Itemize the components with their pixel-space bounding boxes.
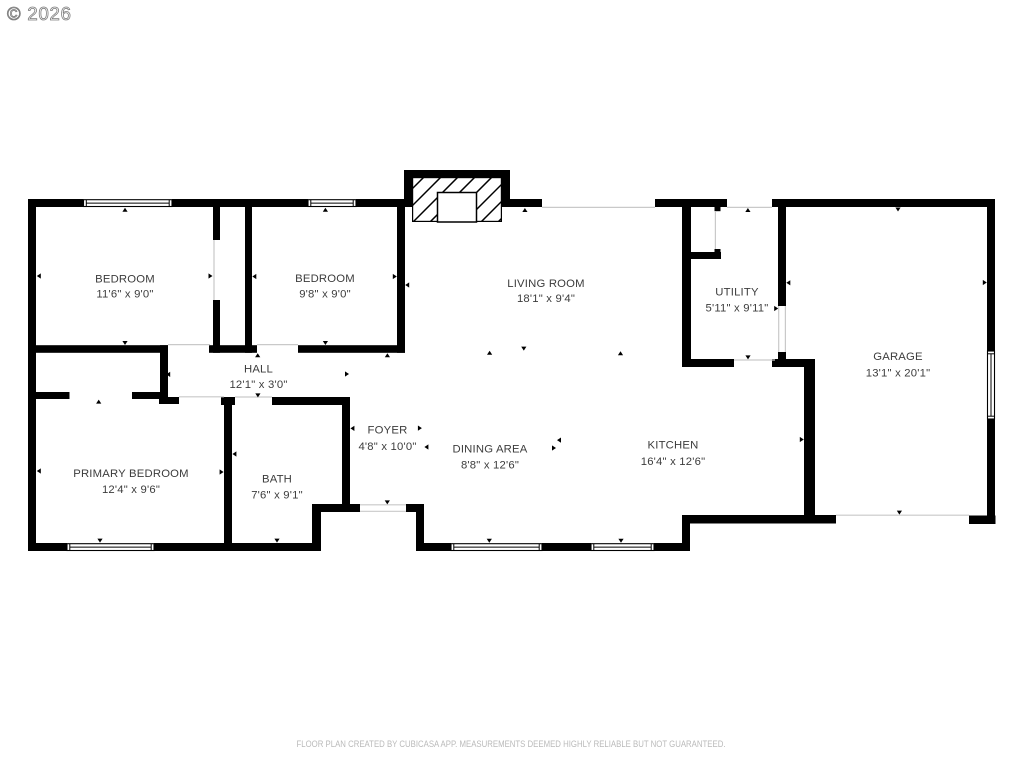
svg-text:5'11" x 9'11": 5'11" x 9'11" [706, 303, 769, 315]
svg-text:HALL: HALL [244, 364, 273, 376]
svg-text:12'4" x 9'6": 12'4" x 9'6" [102, 484, 160, 496]
svg-text:PRIMARY BEDROOM: PRIMARY BEDROOM [73, 468, 189, 480]
svg-text:13'1" x 20'1": 13'1" x 20'1" [866, 368, 931, 380]
svg-text:BEDROOM: BEDROOM [295, 273, 355, 285]
svg-text:18'1" x 9'4": 18'1" x 9'4" [517, 293, 575, 305]
svg-text:FLOOR PLAN CREATED BY CUBICASA: FLOOR PLAN CREATED BY CUBICASA APP. MEAS… [297, 739, 726, 750]
svg-text:GARAGE: GARAGE [873, 351, 923, 363]
svg-text:KITCHEN: KITCHEN [648, 440, 699, 452]
svg-text:16'4" x 12'6": 16'4" x 12'6" [641, 456, 706, 468]
svg-text:© 2026: © 2026 [7, 3, 72, 24]
svg-text:7'6" x 9'1": 7'6" x 9'1" [251, 490, 303, 502]
svg-text:DINING AREA: DINING AREA [452, 444, 527, 456]
svg-text:UTILITY: UTILITY [715, 287, 759, 299]
svg-text:9'8" x 9'0": 9'8" x 9'0" [299, 289, 351, 301]
svg-text:FOYER: FOYER [368, 425, 408, 437]
svg-text:11'6" x 9'0": 11'6" x 9'0" [96, 289, 153, 301]
svg-text:4'8" x 10'0": 4'8" x 10'0" [358, 441, 416, 453]
svg-text:BATH: BATH [262, 474, 292, 486]
svg-text:8'8" x 12'6": 8'8" x 12'6" [461, 460, 519, 472]
svg-text:12'1" x 3'0": 12'1" x 3'0" [229, 379, 287, 391]
svg-text:BEDROOM: BEDROOM [95, 274, 155, 286]
svg-text:LIVING ROOM: LIVING ROOM [507, 278, 585, 290]
